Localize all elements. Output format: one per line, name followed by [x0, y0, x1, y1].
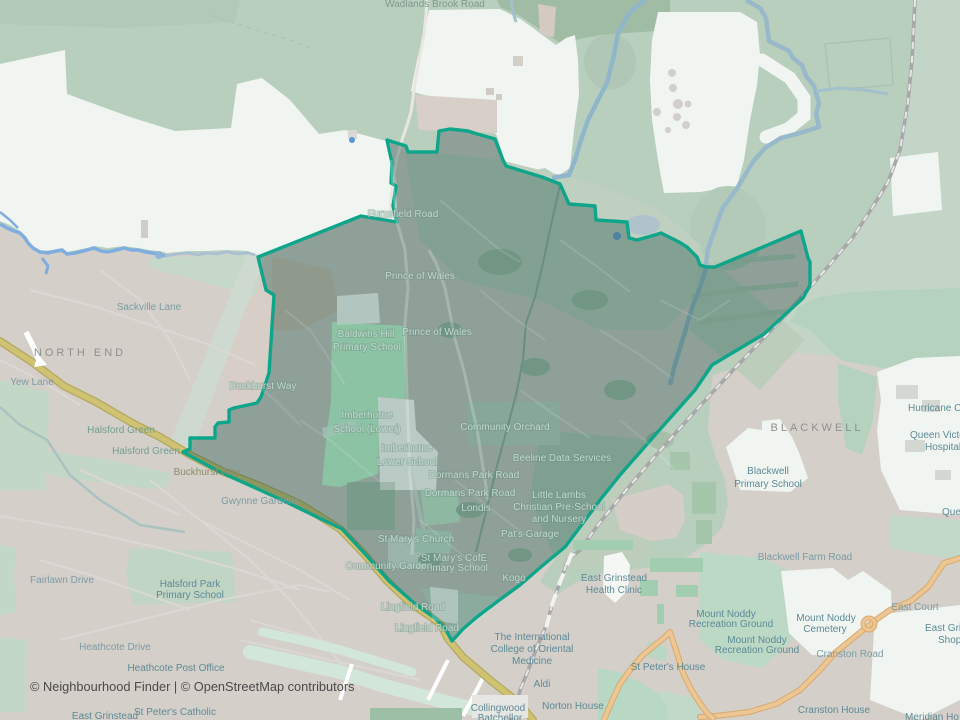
- svg-text:East Grinst: East Grinst: [925, 623, 960, 634]
- svg-text:Cranston Road: Cranston Road: [816, 649, 883, 660]
- svg-text:Aldi: Aldi: [534, 679, 551, 690]
- svg-text:Community Garden: Community Garden: [346, 561, 433, 572]
- svg-text:Meridian Ho: Meridian Ho: [905, 712, 959, 720]
- svg-text:Mount Noddy: Mount Noddy: [796, 613, 855, 624]
- svg-text:Heathcote Drive: Heathcote Drive: [79, 642, 151, 653]
- svg-text:Norton House: Norton House: [542, 701, 604, 712]
- svg-text:© Neighbourhood Finder | © Ope: © Neighbourhood Finder | © OpenStreetMap…: [30, 679, 355, 694]
- svg-text:Recreation Ground: Recreation Ground: [689, 619, 774, 630]
- svg-text:Medicine: Medicine: [512, 656, 552, 667]
- svg-text:Prince of Wales: Prince of Wales: [385, 271, 455, 282]
- svg-text:Wadlands Brook Road: Wadlands Brook Road: [385, 0, 485, 10]
- svg-text:Blackwell: Blackwell: [747, 466, 789, 477]
- svg-text:St Peter's Catholic: St Peter's Catholic: [134, 707, 216, 718]
- svg-text:East Grinstead: East Grinstead: [581, 573, 647, 584]
- svg-text:Recreation Ground: Recreation Ground: [715, 645, 800, 656]
- svg-text:Buckhurst Way: Buckhurst Way: [230, 381, 297, 392]
- svg-text:Halsford Green: Halsford Green: [87, 425, 155, 436]
- svg-text:The International: The International: [494, 632, 569, 643]
- svg-text:Lingfield Road: Lingfield Road: [381, 602, 445, 613]
- svg-text:Blackwell Farm Road: Blackwell Farm Road: [758, 552, 852, 563]
- svg-text:Halsford Park: Halsford Park: [160, 579, 222, 590]
- svg-text:BLACKWELL: BLACKWELL: [770, 422, 863, 434]
- svg-text:Shoppi: Shoppi: [938, 635, 960, 646]
- svg-text:East Court: East Court: [891, 602, 938, 613]
- svg-text:Imberhorne: Imberhorne: [341, 410, 393, 421]
- svg-text:College of Oriental: College of Oriental: [491, 644, 574, 655]
- svg-text:Primary School: Primary School: [734, 479, 802, 490]
- svg-text:Community Orchard: Community Orchard: [460, 422, 549, 433]
- svg-text:Cranston House: Cranston House: [798, 705, 871, 716]
- svg-text:School (Lower): School (Lower): [333, 424, 400, 435]
- svg-text:St Mary's Church: St Mary's Church: [378, 534, 454, 545]
- svg-text:St Peter's House: St Peter's House: [631, 662, 706, 673]
- svg-text:Imberhorne: Imberhorne: [381, 443, 433, 454]
- svg-text:Hospital: Hospital: [925, 442, 960, 453]
- svg-text:Gwynne Gardens: Gwynne Gardens: [221, 496, 299, 507]
- svg-text:Lingfield Road: Lingfield Road: [395, 623, 459, 634]
- svg-text:Kogo: Kogo: [502, 573, 526, 584]
- svg-text:Fairlawn Drive: Fairlawn Drive: [30, 575, 94, 586]
- svg-text:Christian Pre-School: Christian Pre-School: [513, 502, 605, 513]
- svg-text:Queen Victoria: Queen Victoria: [910, 430, 960, 441]
- svg-text:Yew Lane: Yew Lane: [10, 377, 54, 388]
- svg-text:Queen: Queen: [942, 507, 960, 518]
- svg-text:Hurricane Ca: Hurricane Ca: [908, 403, 960, 414]
- svg-text:Dormans Park Road: Dormans Park Road: [429, 470, 520, 481]
- svg-text:East Grinstead: East Grinstead: [72, 711, 138, 720]
- svg-text:Buckhurst Way: Buckhurst Way: [174, 467, 241, 478]
- svg-text:Batchellor: Batchellor: [478, 713, 523, 720]
- svg-text:Londis: Londis: [461, 503, 490, 514]
- svg-text:Heathcote Post Office: Heathcote Post Office: [127, 663, 225, 674]
- svg-text:Halsford Green: Halsford Green: [112, 446, 180, 457]
- svg-text:Baldwins Hill: Baldwins Hill: [338, 329, 395, 340]
- svg-text:and Nursery: and Nursery: [532, 514, 586, 525]
- svg-text:Health Clinic: Health Clinic: [586, 585, 642, 596]
- svg-text:Furzefield Road: Furzefield Road: [368, 209, 439, 220]
- svg-text:Sackville Lane: Sackville Lane: [117, 302, 182, 313]
- svg-text:Pat's Garage: Pat's Garage: [501, 529, 559, 540]
- svg-text:Lower School: Lower School: [377, 457, 438, 468]
- svg-text:Prince of Wales: Prince of Wales: [402, 327, 472, 338]
- svg-text:Dormans Park Road: Dormans Park Road: [425, 488, 516, 499]
- svg-text:Primary School: Primary School: [333, 342, 401, 353]
- svg-text:Little Lambs: Little Lambs: [532, 490, 586, 501]
- svg-text:Beeline Data Services: Beeline Data Services: [513, 453, 611, 464]
- svg-text:NORTH END: NORTH END: [34, 347, 126, 359]
- svg-text:Cemetery: Cemetery: [803, 624, 846, 635]
- svg-text:Primary School: Primary School: [156, 590, 224, 601]
